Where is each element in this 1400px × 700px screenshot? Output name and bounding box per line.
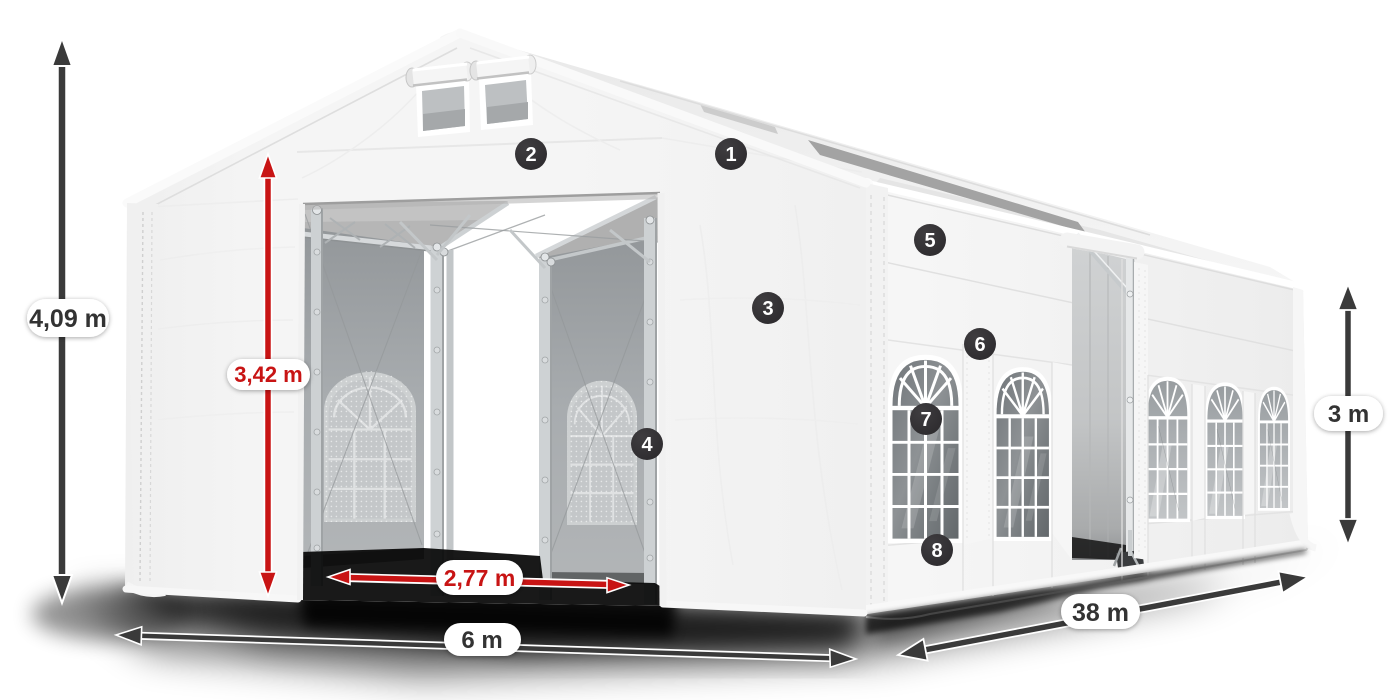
svg-text:1: 1	[725, 144, 736, 166]
svg-text:7: 7	[920, 409, 931, 431]
svg-text:3 m: 3 m	[1328, 401, 1369, 428]
svg-text:5: 5	[924, 230, 935, 252]
svg-text:6 m: 6 m	[461, 627, 502, 654]
svg-text:2,77 m: 2,77 m	[444, 565, 516, 591]
svg-text:8: 8	[931, 540, 942, 562]
svg-text:2: 2	[525, 144, 536, 166]
svg-text:4,09 m: 4,09 m	[29, 305, 107, 333]
svg-text:6: 6	[974, 334, 985, 356]
svg-text:3: 3	[762, 298, 773, 320]
svg-text:38 m: 38 m	[1072, 599, 1129, 627]
svg-text:3,42 m: 3,42 m	[234, 362, 303, 387]
svg-text:4: 4	[641, 434, 653, 456]
